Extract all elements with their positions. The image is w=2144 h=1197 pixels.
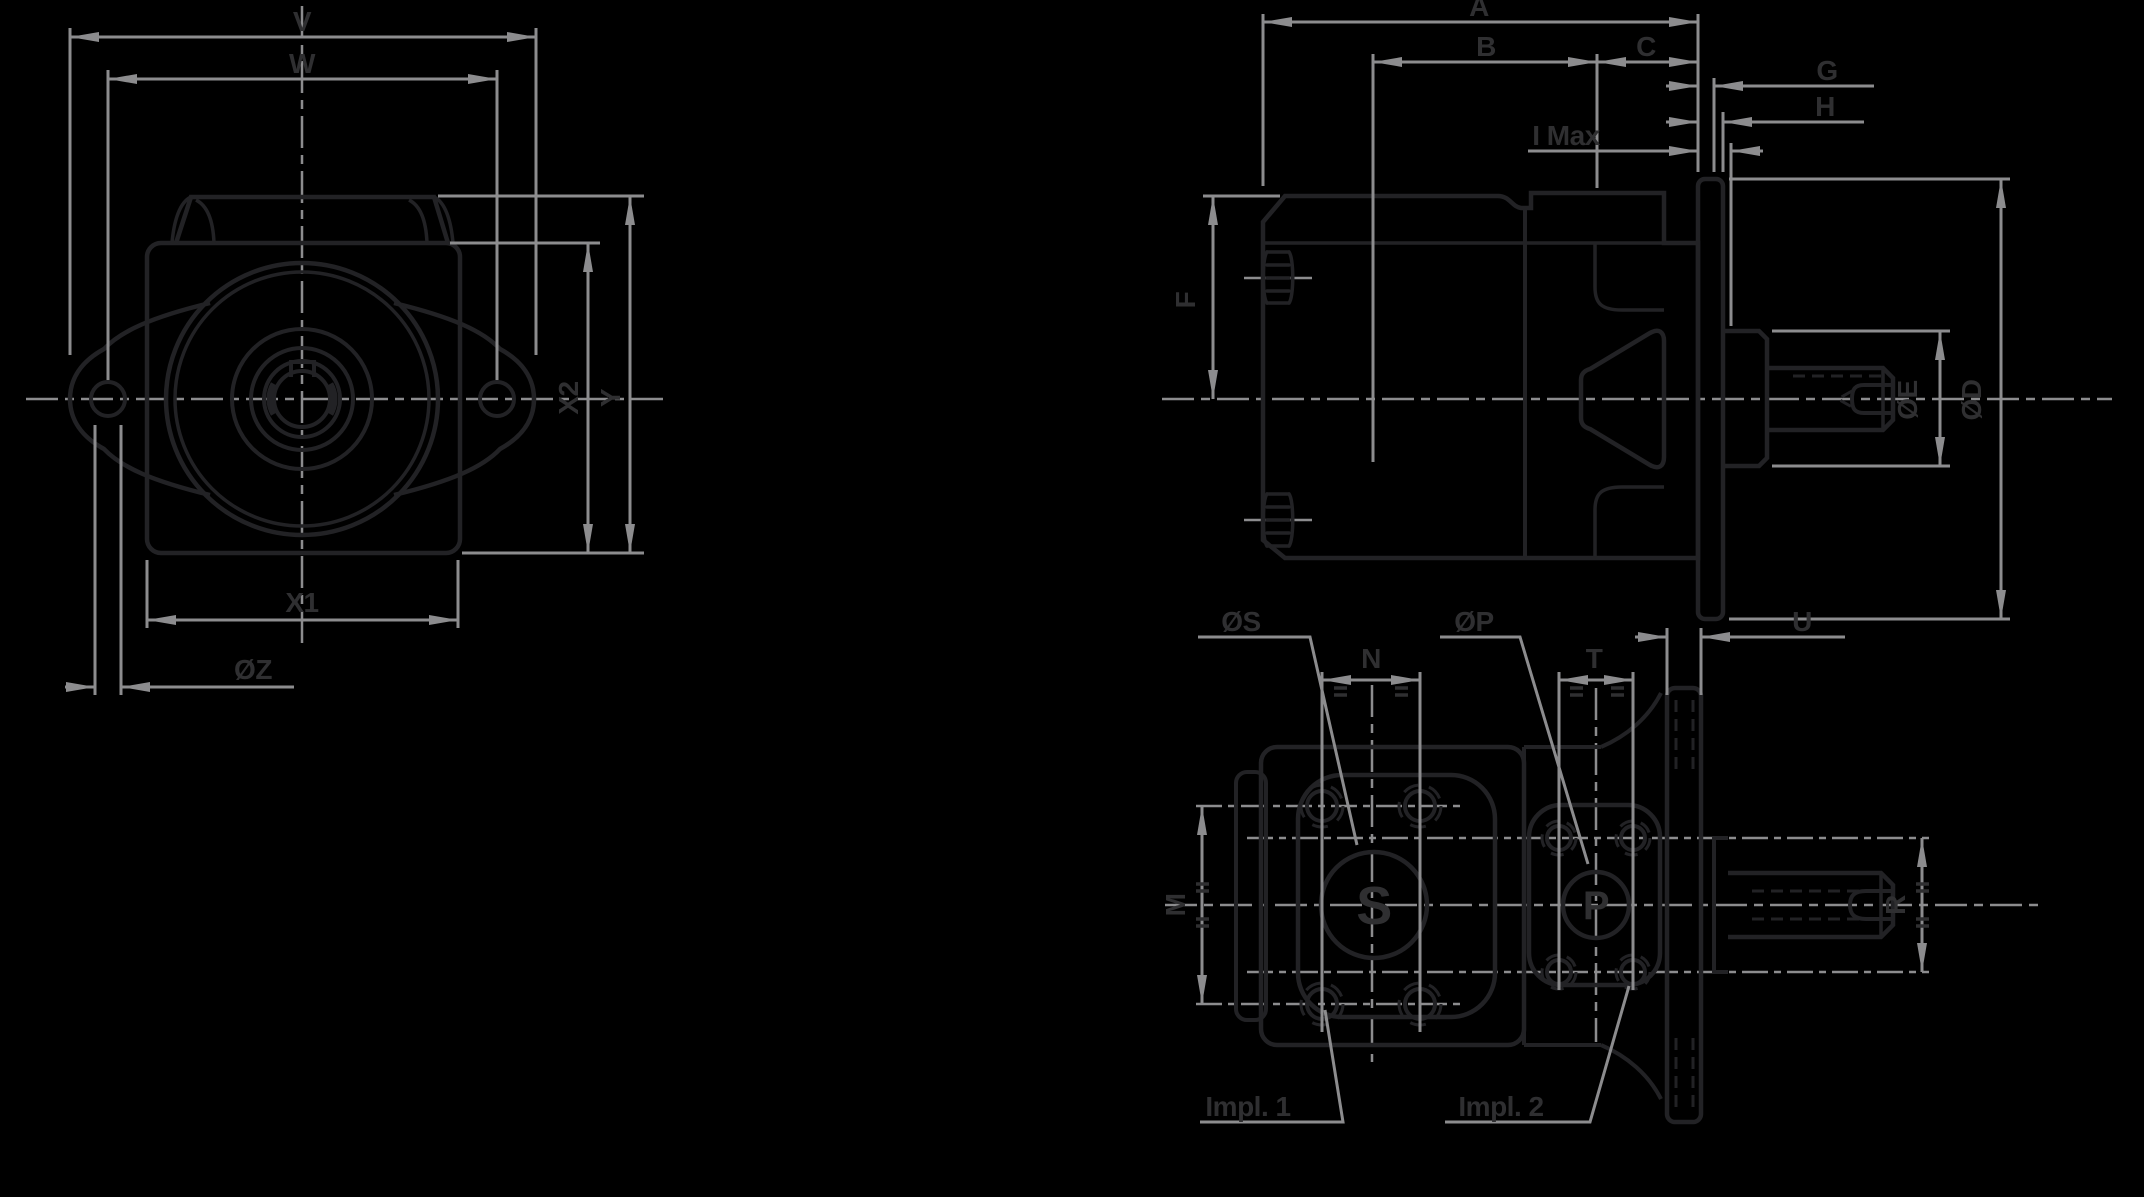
s-port-letter: S <box>1356 876 1392 936</box>
front-bearing-arc-left <box>270 384 274 414</box>
dim-label-r: R <box>1880 895 1911 915</box>
dim-label-f: F <box>1170 291 1201 308</box>
dim-c: C <box>1597 31 1698 62</box>
dim-label-i-max: I Max <box>1532 120 1600 151</box>
dim-label-w: W <box>289 48 316 79</box>
dim-a: A <box>1263 0 1698 186</box>
dim-label-z: ØZ <box>234 654 272 685</box>
dim-label-v: V <box>293 6 312 37</box>
rear-flange-fillet-top <box>1601 693 1661 747</box>
front-bearing-arc-right <box>330 384 334 414</box>
leader-s-dia: ØS <box>1198 606 1357 845</box>
dim-label-b: B <box>1476 31 1496 62</box>
side-rear-port-thread-bottom <box>1263 494 1293 546</box>
dim-r: R <box>1880 838 1929 972</box>
dim-label-h: H <box>1815 91 1835 122</box>
front-boss-inner-left <box>196 200 214 243</box>
label-impl-1: Impl. 1 <box>1205 1091 1290 1122</box>
dim-m: M <box>1160 806 1209 1004</box>
dim-label-u: U <box>1792 606 1812 637</box>
dim-label-y: Y <box>595 388 626 407</box>
rear-flange-slot-top-hidden <box>1676 700 1693 772</box>
dim-z: ØZ <box>65 425 294 695</box>
side-body-outline <box>1263 193 1698 558</box>
dim-label-x2: X2 <box>553 381 584 414</box>
dim-label-m: M <box>1160 894 1191 917</box>
dim-label-p-dia: ØP <box>1454 606 1493 637</box>
dim-label-s-dia: ØS <box>1221 606 1260 637</box>
dim-h: H <box>1666 91 1864 172</box>
side-lower-cavity-line <box>1595 487 1664 558</box>
rear-flange-slot-bottom-hidden <box>1676 1038 1693 1110</box>
dim-label-d: ØD <box>1956 379 1987 420</box>
front-top-boss <box>176 197 448 243</box>
dim-i-max: I Max <box>1528 120 1763 326</box>
dim-label-t: T <box>1586 643 1603 674</box>
side-upper-cavity-line <box>1595 243 1664 310</box>
rear-view: S P N T U M <box>1160 606 2040 1122</box>
dim-label-n: N <box>1361 643 1381 674</box>
dim-label-g: G <box>1816 55 1837 86</box>
drawing-canvas: V W X2 Y X1 ØZ <box>0 0 2144 1197</box>
leader-impl-2: Impl. 2 <box>1445 986 1629 1122</box>
dim-label-e: ØE <box>1892 380 1923 419</box>
side-rear-port-thread-top <box>1263 252 1293 303</box>
pump-dimension-drawing: V W X2 Y X1 ØZ <box>0 0 2144 1197</box>
front-view: V W X2 Y X1 ØZ <box>26 6 664 695</box>
dim-label-x1: X1 <box>285 587 318 618</box>
dim-b: B <box>1373 31 1597 462</box>
dim-label-c: C <box>1636 31 1656 62</box>
p-port-letter: P <box>1583 884 1609 928</box>
dim-y: Y <box>438 196 644 553</box>
leader-p-dia: ØP <box>1440 606 1588 864</box>
rear-s-port-pad <box>1298 775 1495 1017</box>
dim-label-a: A <box>1469 0 1489 22</box>
front-boss-inner-right <box>409 200 427 243</box>
side-view: A B C G H I Max <box>1162 0 2112 619</box>
label-impl-2: Impl. 2 <box>1458 1091 1543 1122</box>
